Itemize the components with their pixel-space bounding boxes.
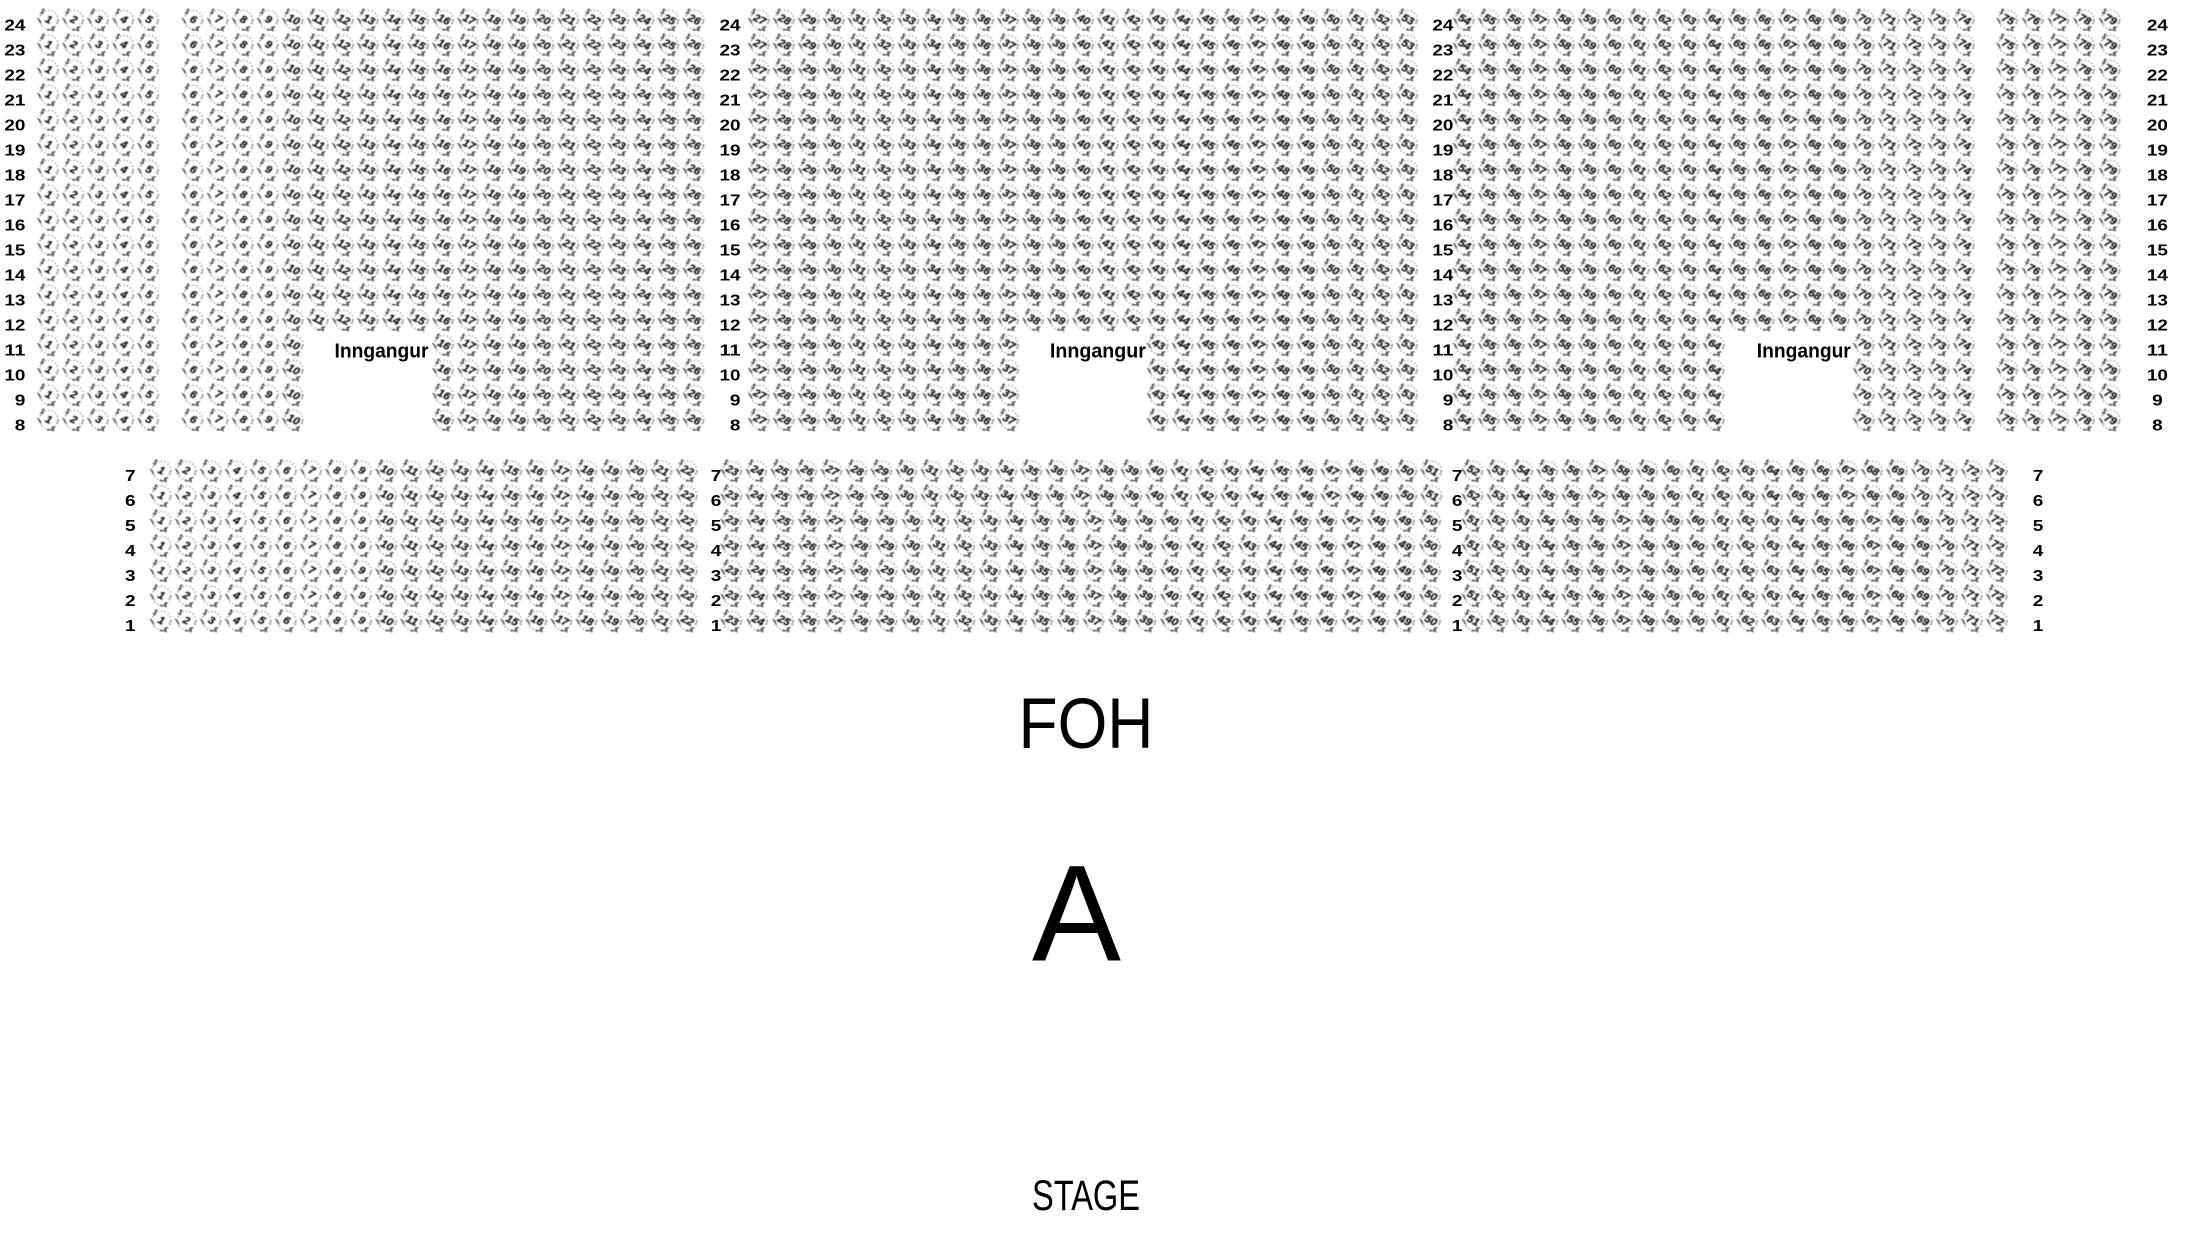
svg-text:31: 31 (851, 112, 868, 128)
svg-text:15: 15 (4, 243, 25, 260)
svg-text:24: 24 (2147, 18, 2168, 35)
svg-text:10: 10 (4, 368, 25, 385)
svg-text:6: 6 (281, 489, 293, 503)
svg-text:17: 17 (720, 193, 741, 210)
svg-text:17: 17 (4, 193, 25, 210)
svg-text:31: 31 (924, 463, 941, 479)
svg-text:71: 71 (1881, 287, 1898, 303)
svg-text:31: 31 (851, 162, 868, 178)
svg-text:8: 8 (238, 138, 250, 152)
svg-text:6: 6 (711, 493, 722, 510)
svg-text:3: 3 (93, 238, 105, 252)
svg-text:6: 6 (188, 163, 200, 177)
svg-text:13: 13 (720, 293, 741, 310)
svg-text:2: 2 (180, 589, 193, 603)
svg-text:5: 5 (125, 518, 136, 535)
svg-text:4: 4 (117, 238, 130, 252)
svg-text:1: 1 (1452, 618, 1463, 635)
svg-text:21: 21 (4, 93, 25, 110)
svg-text:31: 31 (851, 87, 868, 103)
svg-text:6: 6 (188, 338, 200, 352)
svg-text:7: 7 (213, 63, 225, 77)
svg-text:A: A (1032, 838, 1122, 991)
svg-text:11: 11 (311, 112, 327, 128)
svg-text:9: 9 (263, 13, 275, 27)
svg-text:71: 71 (1881, 387, 1898, 403)
svg-text:5: 5 (256, 614, 268, 628)
svg-text:10: 10 (720, 368, 741, 385)
svg-text:6: 6 (1452, 493, 1463, 510)
svg-text:1: 1 (156, 514, 167, 528)
svg-text:1: 1 (43, 388, 54, 402)
svg-text:31: 31 (851, 237, 868, 253)
svg-text:8: 8 (238, 388, 250, 402)
svg-text:4: 4 (230, 614, 243, 628)
svg-text:51: 51 (1465, 613, 1482, 629)
svg-text:71: 71 (1881, 187, 1898, 203)
svg-text:6: 6 (188, 113, 200, 127)
svg-text:1: 1 (43, 313, 54, 327)
svg-text:4: 4 (117, 213, 130, 227)
svg-text:12: 12 (1432, 318, 1453, 335)
svg-text:1: 1 (43, 113, 54, 127)
svg-text:6: 6 (188, 213, 200, 227)
svg-text:7: 7 (213, 88, 225, 102)
svg-text:8: 8 (1443, 418, 1454, 435)
svg-text:31: 31 (851, 337, 868, 353)
svg-text:61: 61 (1631, 287, 1648, 303)
svg-text:11: 11 (311, 12, 327, 28)
svg-text:71: 71 (1881, 412, 1898, 428)
svg-text:7: 7 (213, 113, 225, 127)
svg-text:23: 23 (720, 43, 741, 60)
svg-text:14: 14 (720, 268, 741, 285)
svg-text:11: 11 (720, 343, 741, 360)
svg-text:51: 51 (1424, 463, 1441, 479)
svg-text:19: 19 (4, 143, 25, 160)
svg-text:3: 3 (93, 138, 105, 152)
svg-text:5: 5 (143, 188, 155, 202)
svg-text:7: 7 (213, 263, 225, 277)
svg-text:5: 5 (256, 589, 268, 603)
svg-text:11: 11 (311, 162, 327, 178)
svg-text:61: 61 (1631, 137, 1648, 153)
svg-text:7: 7 (125, 468, 136, 485)
svg-text:6: 6 (188, 13, 200, 27)
svg-text:11: 11 (311, 37, 327, 53)
svg-text:71: 71 (1964, 563, 1981, 579)
svg-text:14: 14 (4, 268, 25, 285)
svg-text:61: 61 (1631, 112, 1648, 128)
svg-text:11: 11 (404, 488, 420, 504)
svg-text:51: 51 (1349, 137, 1366, 153)
svg-text:17: 17 (1432, 193, 1453, 210)
svg-text:20: 20 (2147, 118, 2168, 135)
svg-text:4: 4 (117, 138, 130, 152)
svg-text:8: 8 (238, 288, 250, 302)
svg-text:5: 5 (143, 38, 155, 52)
svg-text:51: 51 (1349, 62, 1366, 78)
svg-text:5: 5 (256, 464, 268, 478)
svg-text:51: 51 (1349, 362, 1366, 378)
svg-text:9: 9 (356, 514, 368, 528)
svg-text:31: 31 (851, 187, 868, 203)
svg-text:12: 12 (4, 318, 25, 335)
svg-text:61: 61 (1631, 12, 1648, 28)
svg-text:11: 11 (311, 287, 327, 303)
svg-text:71: 71 (1881, 137, 1898, 153)
svg-text:7: 7 (306, 464, 318, 478)
svg-text:11: 11 (4, 343, 25, 360)
svg-text:1: 1 (156, 614, 167, 628)
svg-text:16: 16 (4, 218, 25, 235)
svg-text:8: 8 (238, 238, 250, 252)
svg-text:3: 3 (206, 589, 218, 603)
svg-text:3: 3 (206, 514, 218, 528)
svg-text:4: 4 (2033, 543, 2044, 560)
svg-text:31: 31 (924, 488, 941, 504)
svg-text:3: 3 (93, 13, 105, 27)
svg-text:9: 9 (263, 313, 275, 327)
svg-text:6: 6 (188, 363, 200, 377)
svg-text:4: 4 (117, 13, 130, 27)
svg-text:3: 3 (93, 188, 105, 202)
svg-text:3: 3 (206, 489, 218, 503)
svg-text:18: 18 (720, 168, 741, 185)
svg-text:2: 2 (67, 38, 80, 52)
svg-text:51: 51 (1424, 488, 1441, 504)
svg-text:5: 5 (711, 518, 722, 535)
svg-text:23: 23 (4, 43, 25, 60)
svg-text:4: 4 (117, 188, 130, 202)
svg-text:1: 1 (125, 618, 136, 635)
svg-text:8: 8 (238, 313, 250, 327)
svg-text:11: 11 (404, 613, 420, 629)
svg-text:16: 16 (720, 218, 741, 235)
svg-text:3: 3 (93, 388, 105, 402)
svg-text:3: 3 (93, 413, 105, 427)
svg-text:4: 4 (117, 63, 130, 77)
svg-text:1: 1 (43, 88, 54, 102)
svg-text:4: 4 (117, 263, 130, 277)
svg-text:2: 2 (1452, 593, 1463, 610)
svg-text:11: 11 (404, 563, 420, 579)
svg-text:51: 51 (1349, 212, 1366, 228)
svg-text:61: 61 (1631, 62, 1648, 78)
svg-text:31: 31 (851, 212, 868, 228)
svg-text:7: 7 (213, 388, 225, 402)
svg-text:24: 24 (1432, 18, 1453, 35)
svg-text:61: 61 (1631, 212, 1648, 228)
svg-text:31: 31 (851, 12, 868, 28)
svg-text:9: 9 (263, 63, 275, 77)
svg-text:STAGE: STAGE (1032, 1173, 1140, 1220)
svg-text:9: 9 (263, 88, 275, 102)
svg-text:5: 5 (143, 213, 155, 227)
svg-text:8: 8 (331, 564, 343, 578)
svg-text:31: 31 (851, 362, 868, 378)
svg-text:23: 23 (2147, 43, 2168, 60)
svg-text:5: 5 (143, 238, 155, 252)
svg-text:11: 11 (311, 187, 327, 203)
svg-text:71: 71 (1881, 112, 1898, 128)
svg-text:2: 2 (180, 539, 193, 553)
svg-text:11: 11 (2147, 343, 2168, 360)
svg-text:15: 15 (720, 243, 741, 260)
svg-text:9: 9 (356, 614, 368, 628)
svg-text:7: 7 (213, 163, 225, 177)
svg-text:6: 6 (281, 614, 293, 628)
svg-text:6: 6 (188, 288, 200, 302)
svg-text:18: 18 (1432, 168, 1453, 185)
svg-text:8: 8 (730, 418, 741, 435)
svg-text:6: 6 (281, 514, 293, 528)
svg-text:51: 51 (1349, 187, 1366, 203)
svg-text:71: 71 (1881, 337, 1898, 353)
svg-text:8: 8 (238, 63, 250, 77)
svg-text:9: 9 (263, 163, 275, 177)
svg-text:20: 20 (720, 118, 741, 135)
svg-text:3: 3 (93, 288, 105, 302)
svg-text:4: 4 (117, 413, 130, 427)
svg-text:8: 8 (331, 589, 343, 603)
svg-text:61: 61 (1714, 513, 1731, 529)
svg-text:12: 12 (2147, 318, 2168, 335)
svg-text:51: 51 (1349, 262, 1366, 278)
svg-text:5: 5 (143, 113, 155, 127)
svg-text:31: 31 (851, 312, 868, 328)
svg-text:4: 4 (117, 163, 130, 177)
svg-text:2: 2 (67, 138, 80, 152)
svg-text:8: 8 (2152, 418, 2163, 435)
svg-text:24: 24 (4, 18, 25, 35)
svg-text:11: 11 (311, 262, 327, 278)
svg-text:71: 71 (1881, 62, 1898, 78)
svg-text:7: 7 (213, 413, 225, 427)
svg-text:3: 3 (206, 614, 218, 628)
svg-text:3: 3 (93, 163, 105, 177)
svg-text:4: 4 (117, 338, 130, 352)
svg-text:8: 8 (238, 413, 250, 427)
svg-text:1: 1 (43, 413, 54, 427)
svg-text:5: 5 (143, 63, 155, 77)
svg-text:51: 51 (1349, 287, 1366, 303)
svg-text:7: 7 (306, 564, 318, 578)
svg-text:3: 3 (206, 539, 218, 553)
svg-text:2: 2 (67, 313, 80, 327)
svg-text:9: 9 (263, 38, 275, 52)
svg-text:5: 5 (143, 13, 155, 27)
svg-text:5: 5 (1452, 518, 1463, 535)
svg-text:5: 5 (143, 288, 155, 302)
svg-text:7: 7 (213, 13, 225, 27)
svg-text:1: 1 (43, 38, 54, 52)
svg-text:2: 2 (67, 113, 80, 127)
svg-text:51: 51 (1465, 588, 1482, 604)
svg-text:71: 71 (1881, 237, 1898, 253)
svg-text:4: 4 (711, 543, 722, 560)
svg-text:3: 3 (93, 63, 105, 77)
svg-text:71: 71 (1964, 613, 1981, 629)
svg-text:4: 4 (230, 564, 243, 578)
svg-text:5: 5 (143, 313, 155, 327)
svg-text:7: 7 (213, 38, 225, 52)
svg-text:3: 3 (93, 213, 105, 227)
svg-text:1: 1 (2033, 618, 2044, 635)
svg-text:1: 1 (156, 539, 167, 553)
svg-text:9: 9 (15, 393, 26, 410)
svg-text:5: 5 (143, 88, 155, 102)
svg-text:51: 51 (1349, 237, 1366, 253)
svg-text:6: 6 (188, 263, 200, 277)
svg-text:22: 22 (4, 68, 25, 85)
svg-text:9: 9 (1443, 393, 1454, 410)
svg-text:7: 7 (213, 338, 225, 352)
svg-text:9: 9 (263, 138, 275, 152)
svg-text:6: 6 (188, 88, 200, 102)
svg-text:61: 61 (1631, 162, 1648, 178)
svg-text:1: 1 (43, 163, 54, 177)
svg-text:7: 7 (306, 614, 318, 628)
svg-text:2: 2 (180, 514, 193, 528)
svg-text:24: 24 (720, 18, 741, 35)
svg-text:2: 2 (67, 288, 80, 302)
svg-text:5: 5 (256, 564, 268, 578)
svg-text:71: 71 (1881, 312, 1898, 328)
svg-text:71: 71 (1881, 262, 1898, 278)
svg-text:9: 9 (263, 413, 275, 427)
svg-text:13: 13 (4, 293, 25, 310)
svg-text:9: 9 (356, 464, 368, 478)
svg-text:2: 2 (180, 464, 193, 478)
svg-text:4: 4 (117, 313, 130, 327)
svg-text:19: 19 (1432, 143, 1453, 160)
svg-text:61: 61 (1714, 588, 1731, 604)
svg-text:5: 5 (143, 363, 155, 377)
svg-text:2: 2 (67, 388, 80, 402)
svg-text:31: 31 (851, 262, 868, 278)
svg-text:11: 11 (311, 212, 327, 228)
svg-text:1: 1 (43, 138, 54, 152)
svg-text:2: 2 (67, 13, 80, 27)
svg-text:6: 6 (125, 493, 136, 510)
svg-text:61: 61 (1714, 538, 1731, 554)
svg-text:8: 8 (331, 539, 343, 553)
svg-text:11: 11 (311, 62, 327, 78)
svg-text:22: 22 (1432, 68, 1453, 85)
svg-text:31: 31 (851, 412, 868, 428)
svg-text:71: 71 (1964, 538, 1981, 554)
svg-text:5: 5 (143, 163, 155, 177)
svg-text:11: 11 (404, 513, 420, 529)
svg-text:8: 8 (238, 88, 250, 102)
svg-text:19: 19 (2147, 143, 2168, 160)
svg-text:4: 4 (117, 113, 130, 127)
svg-text:6: 6 (188, 413, 200, 427)
svg-text:6: 6 (188, 238, 200, 252)
svg-text:3: 3 (93, 113, 105, 127)
svg-text:2: 2 (67, 63, 80, 77)
svg-text:7: 7 (213, 213, 225, 227)
svg-text:7: 7 (213, 188, 225, 202)
svg-text:3: 3 (93, 88, 105, 102)
svg-text:8: 8 (331, 514, 343, 528)
svg-text:31: 31 (931, 513, 948, 529)
svg-text:4: 4 (230, 539, 243, 553)
svg-text:2: 2 (67, 338, 80, 352)
svg-text:15: 15 (2147, 243, 2168, 260)
svg-text:61: 61 (1714, 613, 1731, 629)
svg-text:5: 5 (256, 489, 268, 503)
svg-text:5: 5 (2033, 518, 2044, 535)
svg-text:71: 71 (1881, 87, 1898, 103)
svg-text:31: 31 (931, 538, 948, 554)
svg-text:9: 9 (356, 589, 368, 603)
svg-text:61: 61 (1631, 412, 1648, 428)
svg-text:20: 20 (1432, 118, 1453, 135)
svg-text:7: 7 (2033, 468, 2044, 485)
svg-text:1: 1 (43, 338, 54, 352)
svg-text:1: 1 (43, 63, 54, 77)
svg-text:4: 4 (117, 363, 130, 377)
svg-text:16: 16 (1432, 218, 1453, 235)
svg-text:61: 61 (1631, 237, 1648, 253)
svg-text:51: 51 (1349, 387, 1366, 403)
svg-text:3: 3 (206, 464, 218, 478)
svg-text:8: 8 (238, 38, 250, 52)
svg-text:2: 2 (67, 88, 80, 102)
svg-text:2: 2 (67, 188, 80, 202)
svg-text:21: 21 (2147, 93, 2168, 110)
svg-text:14: 14 (1432, 268, 1453, 285)
svg-text:10: 10 (2147, 368, 2168, 385)
svg-text:5: 5 (143, 388, 155, 402)
svg-text:51: 51 (1465, 563, 1482, 579)
svg-text:71: 71 (1881, 37, 1898, 53)
svg-text:2: 2 (180, 614, 193, 628)
svg-text:7: 7 (306, 514, 318, 528)
svg-text:2: 2 (180, 489, 193, 503)
svg-text:3: 3 (1452, 568, 1463, 585)
svg-text:2: 2 (67, 163, 80, 177)
svg-text:9: 9 (263, 113, 275, 127)
svg-text:51: 51 (1349, 412, 1366, 428)
svg-text:31: 31 (931, 613, 948, 629)
svg-text:6: 6 (188, 63, 200, 77)
svg-text:6: 6 (188, 388, 200, 402)
svg-text:2: 2 (67, 263, 80, 277)
svg-text:1: 1 (156, 489, 167, 503)
svg-text:9: 9 (730, 393, 741, 410)
svg-text:8: 8 (238, 13, 250, 27)
svg-text:11: 11 (311, 312, 327, 328)
svg-text:7: 7 (213, 238, 225, 252)
svg-text:31: 31 (931, 588, 948, 604)
svg-text:10: 10 (1432, 368, 1453, 385)
svg-text:61: 61 (1631, 87, 1648, 103)
svg-text:4: 4 (117, 38, 130, 52)
svg-text:4: 4 (1452, 543, 1463, 560)
svg-text:4: 4 (230, 589, 243, 603)
svg-text:19: 19 (720, 143, 741, 160)
svg-text:23: 23 (1432, 43, 1453, 60)
svg-text:71: 71 (1881, 162, 1898, 178)
svg-text:61: 61 (1689, 463, 1706, 479)
svg-text:51: 51 (1349, 337, 1366, 353)
svg-text:7: 7 (306, 589, 318, 603)
svg-text:31: 31 (851, 387, 868, 403)
svg-text:61: 61 (1631, 387, 1648, 403)
